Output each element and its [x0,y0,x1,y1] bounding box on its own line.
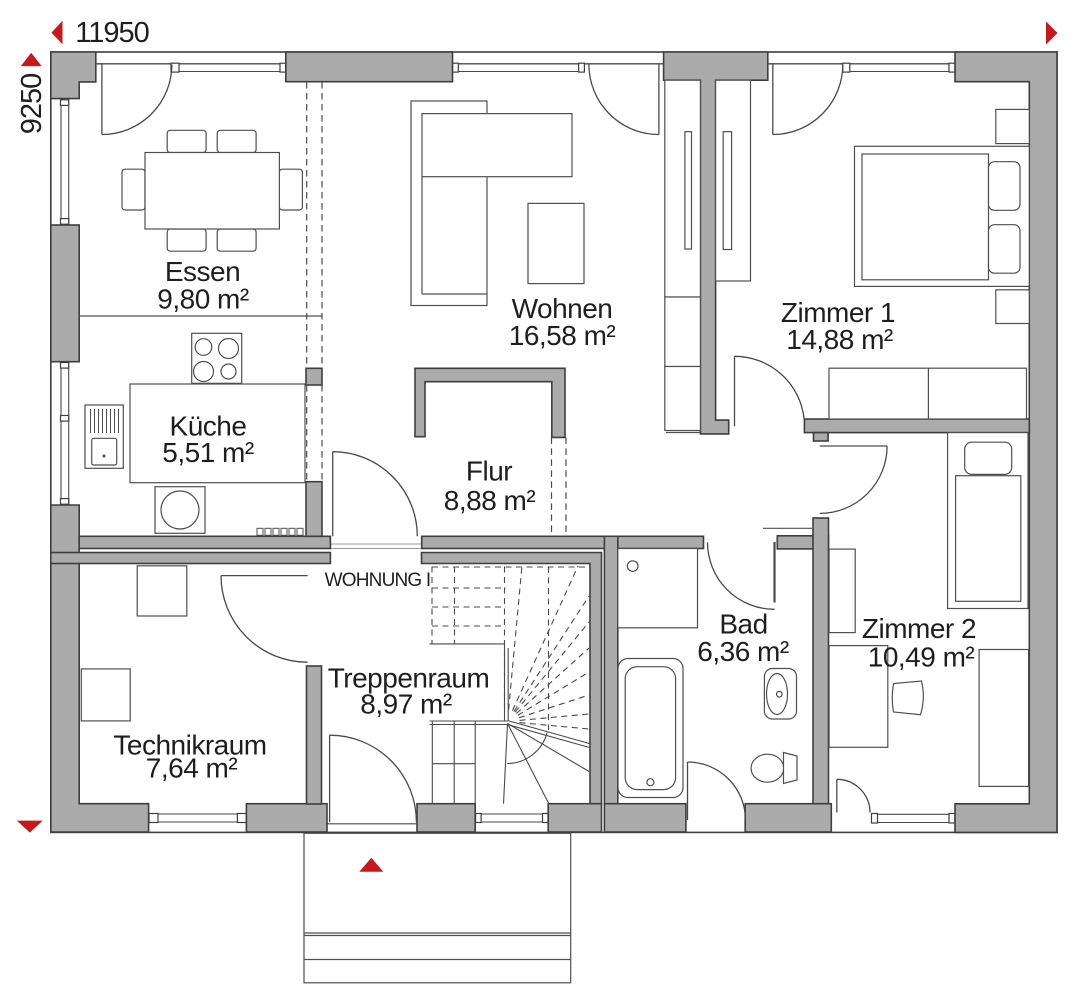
svg-text:8,97 m²: 8,97 m² [360,689,452,720]
svg-text:Bad: Bad [719,609,767,640]
svg-text:WOHNUNG I: WOHNUNG I [325,570,431,591]
svg-text:9,80 m²: 9,80 m² [157,284,249,315]
svg-text:11950: 11950 [75,17,149,49]
svg-text:Essen: Essen [165,256,240,287]
svg-text:14,88 m²: 14,88 m² [786,324,893,355]
svg-text:16,58 m²: 16,58 m² [509,320,616,351]
svg-text:Flur: Flur [466,456,512,487]
svg-text:Zimmer 2: Zimmer 2 [862,613,976,644]
svg-text:7,64 m²: 7,64 m² [146,753,238,784]
svg-text:10,49 m²: 10,49 m² [868,642,975,673]
svg-text:5,51 m²: 5,51 m² [162,437,254,468]
svg-text:9250: 9250 [16,74,48,135]
svg-text:6,36 m²: 6,36 m² [697,636,789,667]
svg-text:8,88 m²: 8,88 m² [444,485,536,516]
